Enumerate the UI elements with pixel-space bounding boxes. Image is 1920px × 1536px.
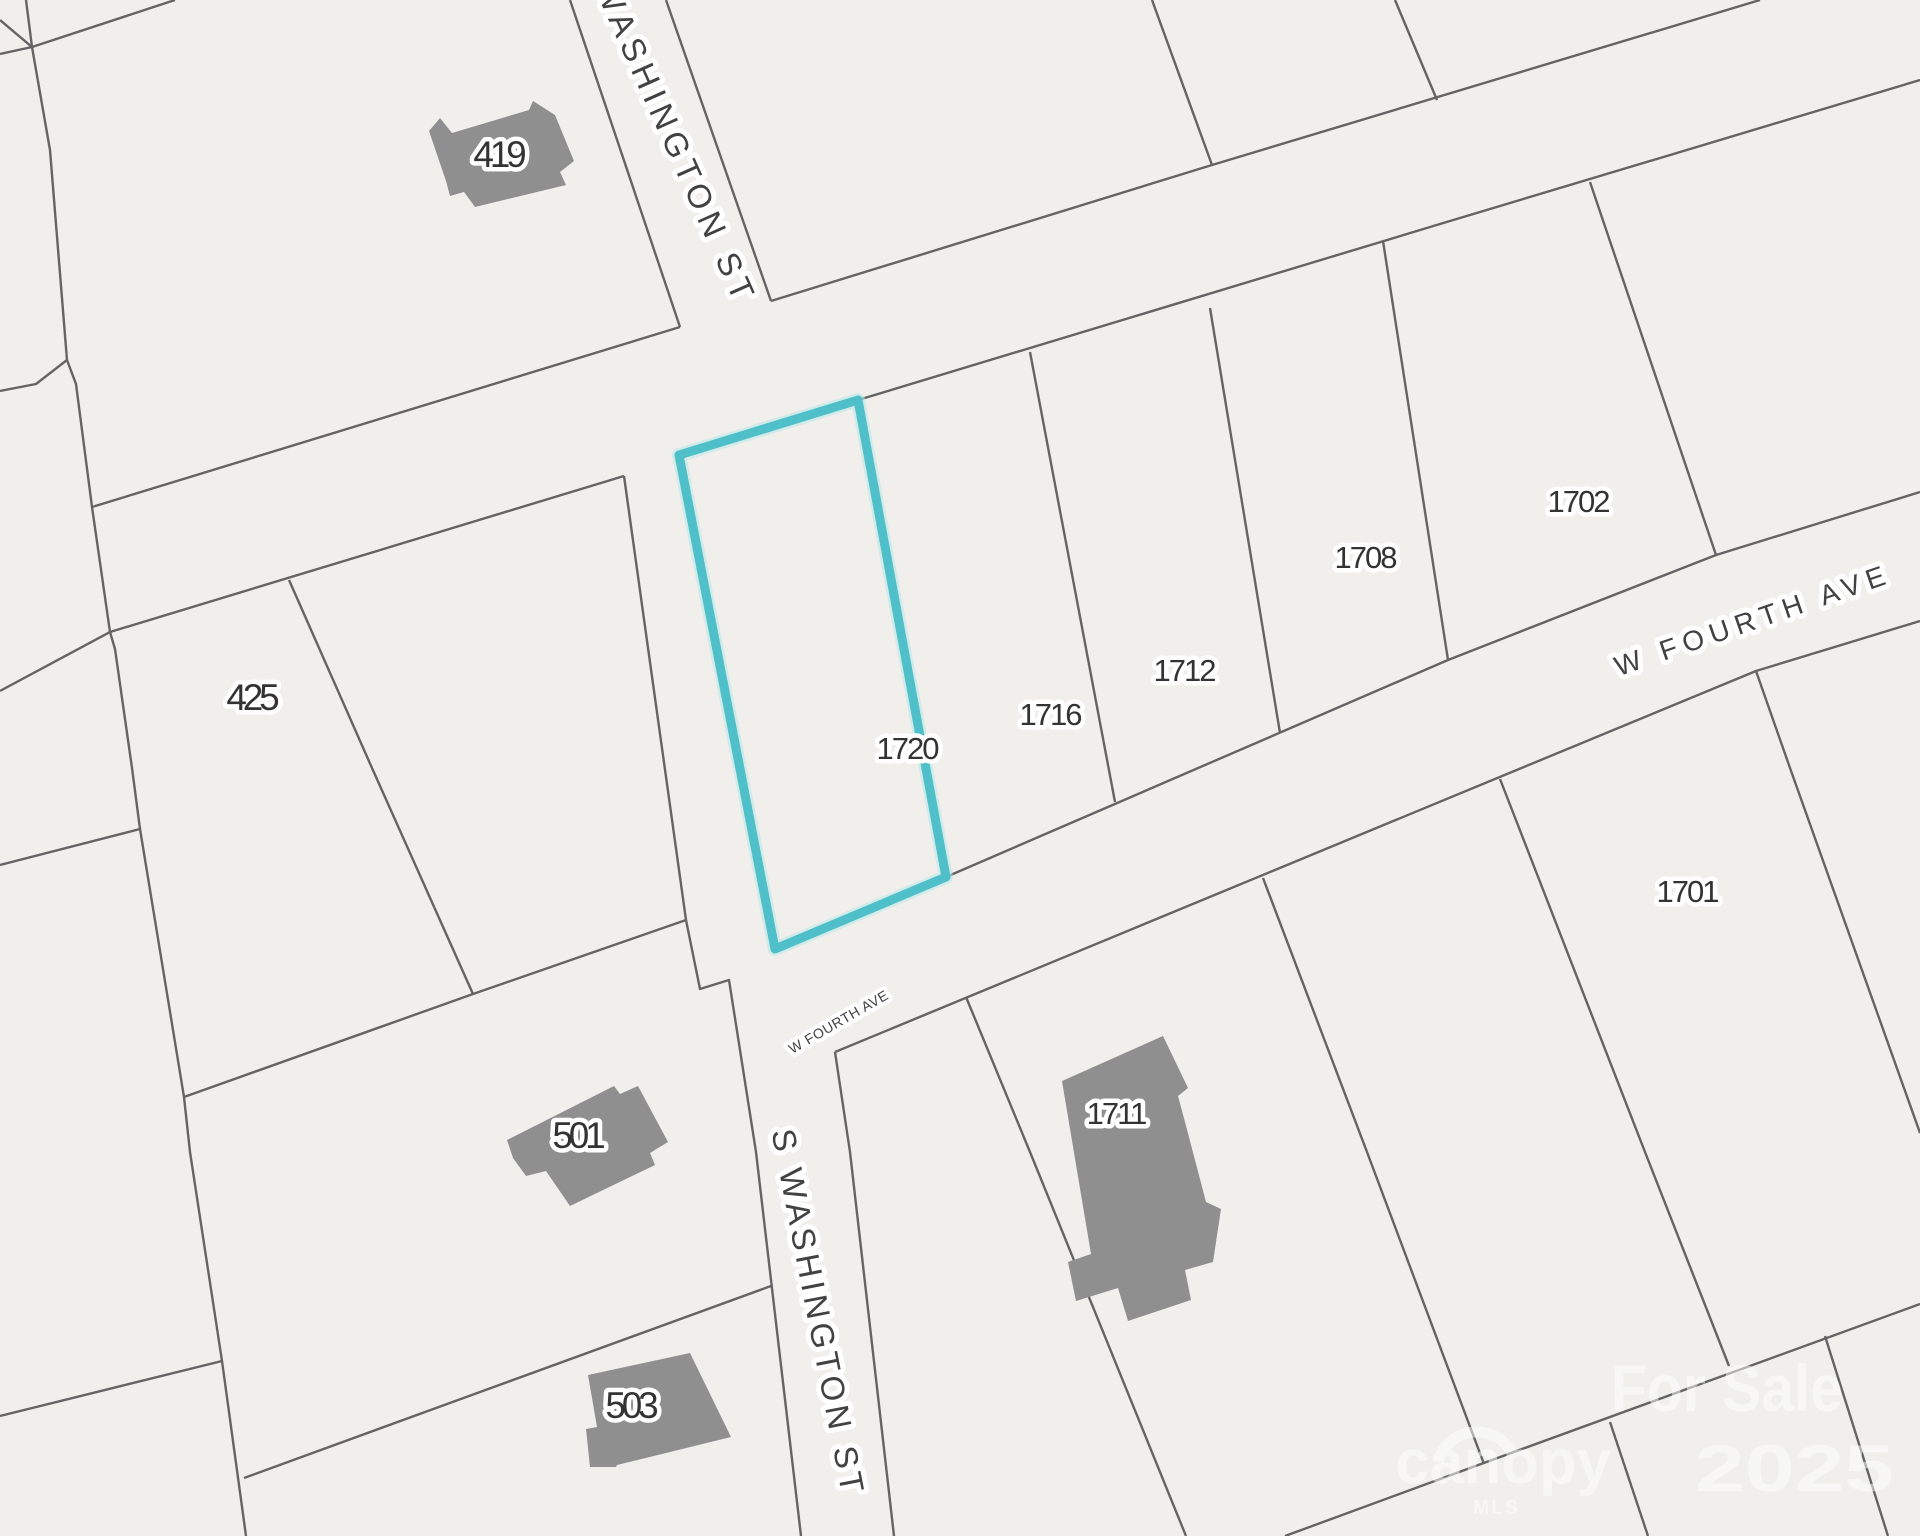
svg-text:419: 419 <box>473 134 525 175</box>
svg-text:501: 501 <box>552 1115 604 1156</box>
svg-text:1712: 1712 <box>1154 653 1216 688</box>
svg-text:MLS: MLS <box>1473 1497 1520 1519</box>
svg-text:1720: 1720 <box>877 731 940 766</box>
svg-text:2025: 2025 <box>1695 1431 1894 1505</box>
svg-text:1702: 1702 <box>1548 484 1610 519</box>
svg-text:503: 503 <box>605 1385 657 1426</box>
svg-text:1708: 1708 <box>1335 540 1397 575</box>
svg-text:1711: 1711 <box>1087 1096 1146 1131</box>
svg-text:425: 425 <box>226 677 279 718</box>
svg-text:1701: 1701 <box>1657 874 1719 909</box>
svg-text:For Sale: For Sale <box>1611 1351 1843 1425</box>
svg-text:1716: 1716 <box>1020 697 1082 732</box>
